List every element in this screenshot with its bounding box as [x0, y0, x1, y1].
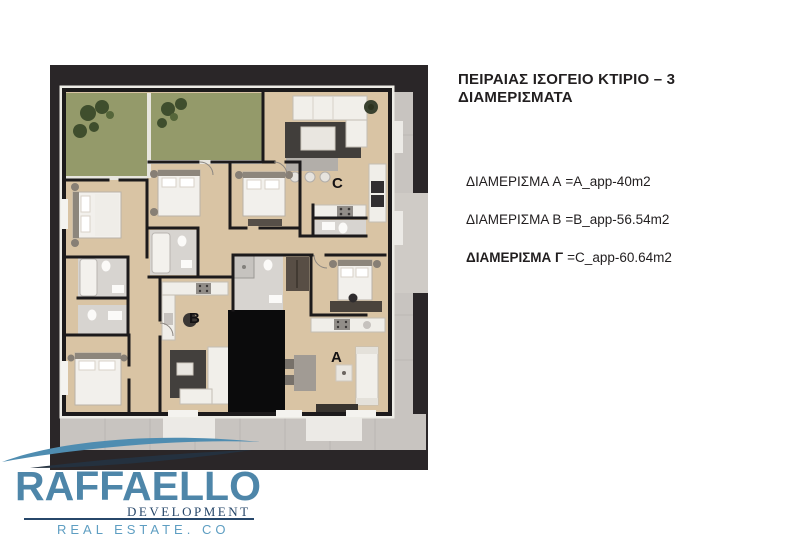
apartment-c-label: ΔΙΑΜΕΡΙΣΜΑ Γ — [466, 250, 563, 265]
logo-subtitle: DEVELOPMENT — [127, 504, 251, 520]
apartment-b-label: ΔΙΑΜΕΡΙΣΜΑ B — [466, 212, 561, 227]
floor-plan-image: A B C — [50, 65, 428, 470]
logo-name: RAFFAELLO — [15, 466, 261, 507]
apartment-a-value: =A_app-40m2 — [565, 174, 650, 189]
page: A B C ΠΕΙΡΑΙΑΣ ΙΣΟΓΕΙΟ ΚΤΙΡΙΟ – 3 ΔΙΑΜΕΡ… — [0, 0, 788, 546]
apartment-row-b: ΔΙΑΜΕΡΙΣΜΑ B=B_app-56.54m2 — [466, 212, 669, 227]
unit-label-b: B — [189, 310, 200, 327]
page-title: ΠΕΙΡΑΙΑΣ ΙΣΟΓΕΙΟ ΚΤΙΡΙΟ – 3 ΔΙΑΜΕΡΙΣΜΑΤΑ — [458, 71, 773, 107]
apartment-row-c: ΔΙΑΜΕΡΙΣΜΑ Γ=C_app-60.64m2 — [466, 250, 672, 265]
logo-tagline: REAL ESTATE. CO — [57, 522, 229, 537]
apartment-a-label: ΔΙΑΜΕΡΙΣΜΑ A — [466, 174, 561, 189]
apartment-c-value: =C_app-60.64m2 — [567, 250, 672, 265]
unit-label-c: C — [332, 175, 343, 192]
floor-plan-graphic — [50, 65, 428, 470]
apartment-b-value: =B_app-56.54m2 — [565, 212, 669, 227]
company-logo: RAFFAELLO DEVELOPMENT REAL ESTATE. CO — [0, 425, 270, 546]
unit-label-a: A — [331, 349, 342, 366]
apartment-row-a: ΔΙΑΜΕΡΙΣΜΑ A=A_app-40m2 — [466, 174, 651, 189]
